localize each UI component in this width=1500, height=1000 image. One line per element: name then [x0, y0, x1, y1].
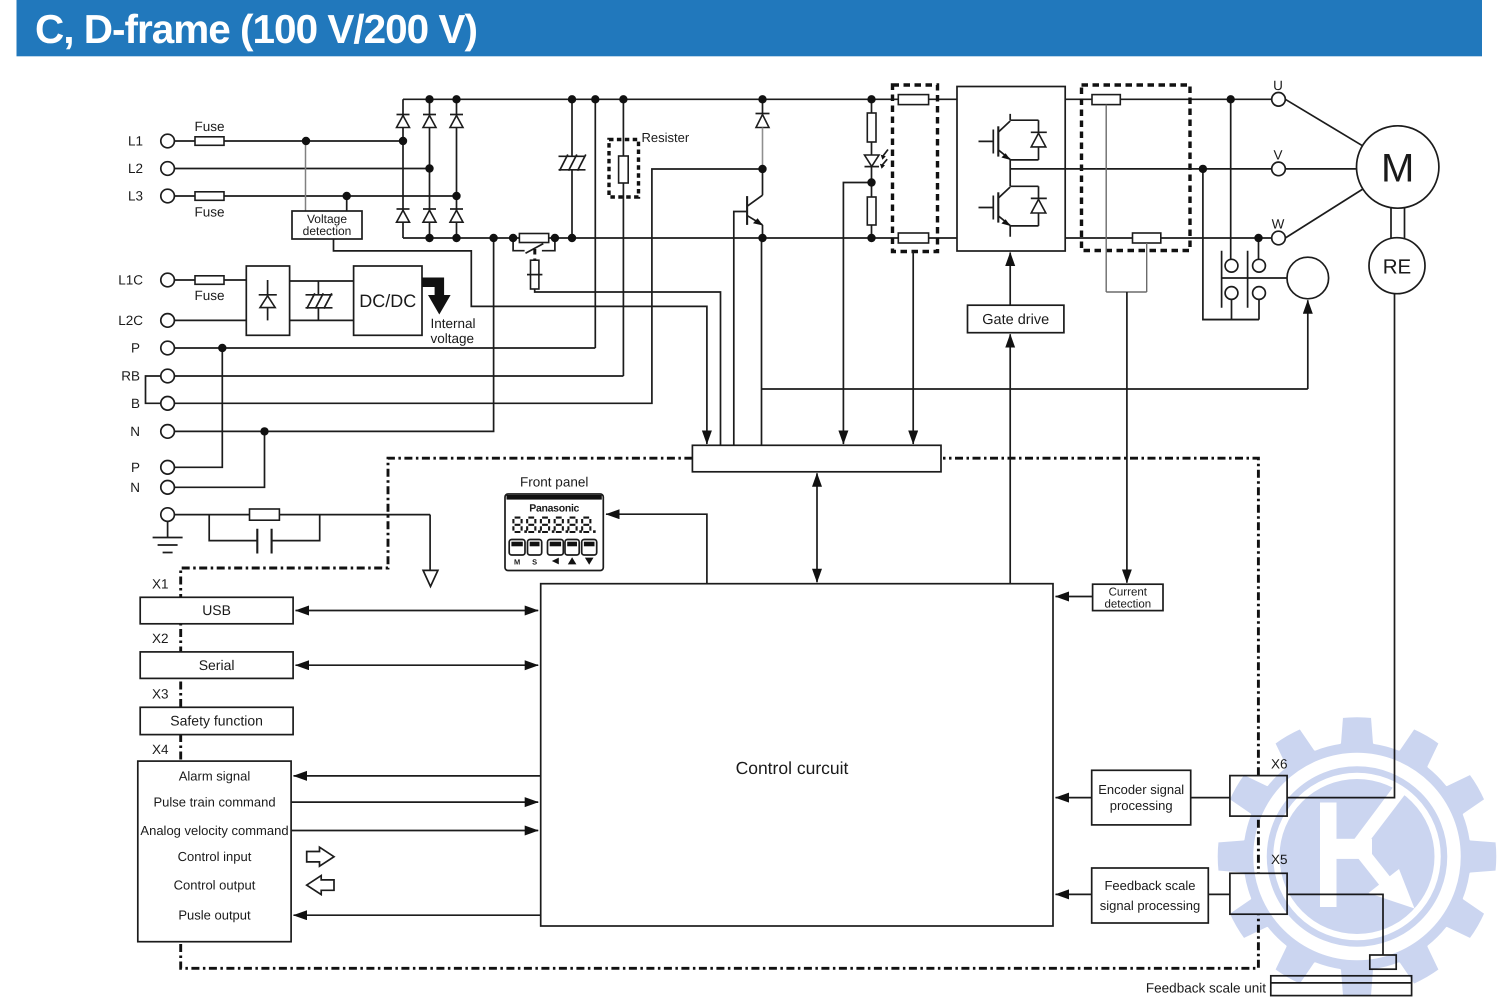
svg-text:detection: detection: [303, 224, 352, 238]
svg-text:L1: L1: [128, 134, 143, 149]
svg-text:Pusle output: Pusle output: [178, 908, 251, 923]
svg-text:V: V: [1273, 148, 1282, 163]
svg-text:X3: X3: [152, 687, 169, 702]
svg-text:detection: detection: [1104, 599, 1151, 611]
svg-text:Panasonic: Panasonic: [529, 503, 579, 515]
svg-text:M: M: [1381, 147, 1414, 191]
svg-text:signal processing: signal processing: [1100, 898, 1200, 913]
svg-text:Fuse: Fuse: [194, 205, 224, 220]
svg-text:Fuse: Fuse: [194, 288, 224, 303]
svg-text:USB: USB: [202, 602, 231, 618]
svg-text:L3: L3: [128, 189, 143, 204]
svg-text:processing: processing: [1110, 798, 1173, 813]
svg-text:Alarm signal: Alarm signal: [179, 768, 251, 783]
svg-text:X2: X2: [152, 631, 169, 646]
svg-text:X1: X1: [152, 577, 169, 592]
svg-text:Analog velocity command: Analog velocity command: [140, 823, 288, 838]
svg-text:Resister: Resister: [642, 130, 690, 145]
svg-text:Current: Current: [1109, 587, 1148, 599]
svg-text:Internal: Internal: [431, 316, 476, 331]
svg-text:DC/DC: DC/DC: [359, 291, 416, 311]
svg-text:Control curcuit: Control curcuit: [736, 758, 849, 778]
svg-text:P: P: [131, 341, 140, 356]
svg-text:Serial: Serial: [199, 657, 235, 673]
svg-text:Front panel: Front panel: [520, 475, 588, 490]
svg-text:W: W: [1272, 217, 1285, 232]
svg-text:P: P: [131, 460, 140, 475]
svg-text:N: N: [130, 424, 140, 439]
svg-text:C, D-frame (100 V/200 V): C, D-frame (100 V/200 V): [35, 6, 477, 52]
svg-text:N: N: [130, 480, 140, 495]
svg-text:Encoder signal: Encoder signal: [1098, 782, 1184, 797]
svg-text:RE: RE: [1383, 256, 1411, 279]
svg-text:Safety function: Safety function: [170, 713, 263, 729]
svg-text:Feedback scale unit: Feedback scale unit: [1146, 981, 1266, 996]
svg-text:S: S: [532, 558, 537, 567]
svg-text:Pulse train command: Pulse train command: [153, 795, 275, 810]
svg-text:X4: X4: [152, 742, 169, 757]
svg-text:Control input: Control input: [178, 849, 252, 864]
svg-text:L1C: L1C: [118, 273, 143, 288]
svg-text:Fuse: Fuse: [194, 119, 224, 134]
svg-text:L2: L2: [128, 161, 143, 176]
svg-text:B: B: [131, 396, 140, 411]
svg-text:Control output: Control output: [174, 878, 256, 893]
svg-text:Feedback scale: Feedback scale: [1104, 878, 1195, 893]
svg-text:voltage: voltage: [431, 331, 475, 346]
svg-text:RB: RB: [121, 369, 140, 384]
svg-text:U: U: [1273, 78, 1283, 93]
svg-text:Gate drive: Gate drive: [982, 312, 1049, 328]
svg-text:M: M: [514, 558, 520, 567]
svg-text:L2C: L2C: [118, 313, 143, 328]
